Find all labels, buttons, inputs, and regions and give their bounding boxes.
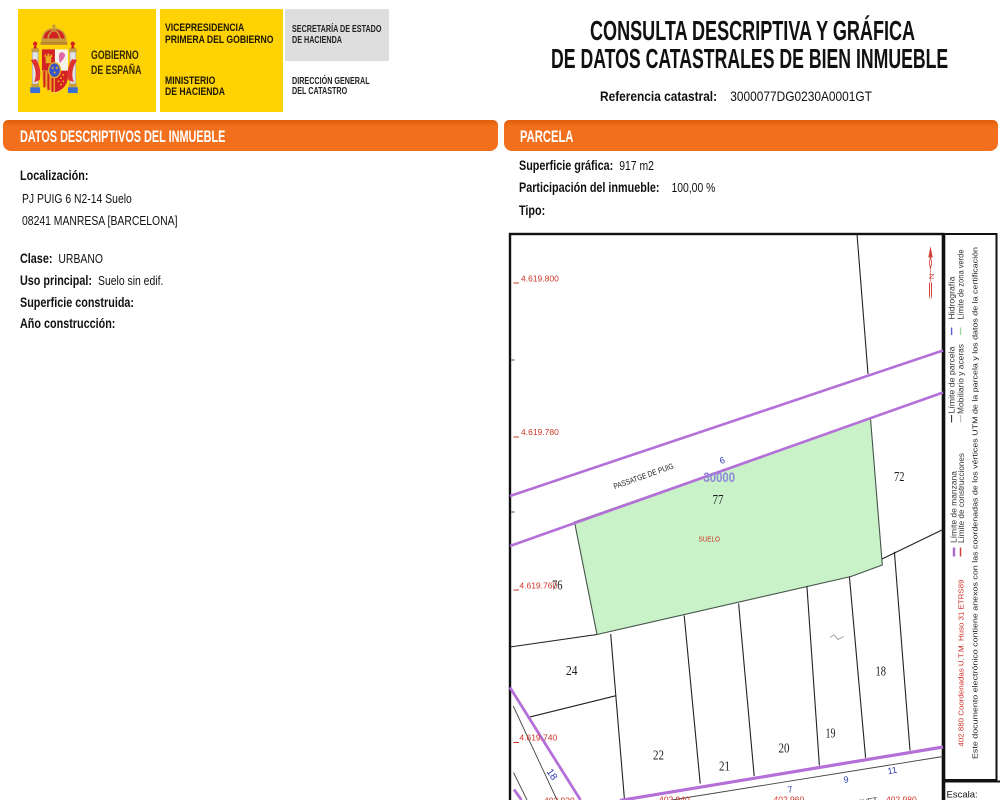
- svg-text:402.960: 402.960: [774, 795, 805, 800]
- svg-text:18: 18: [876, 665, 887, 680]
- svg-text:Mobiliario y aceras: Mobiliario y aceras: [957, 344, 966, 414]
- svg-text:Este documento electrónico con: Este documento electrónico contiene anex…: [971, 247, 980, 759]
- svg-text:77: 77: [713, 493, 724, 508]
- svg-text:SUELO: SUELO: [699, 535, 721, 544]
- svg-text:402.980: 402.980: [886, 795, 917, 800]
- svg-text:19: 19: [826, 727, 836, 742]
- svg-text:N: N: [927, 274, 936, 279]
- svg-text:6: 6: [718, 455, 726, 466]
- svg-text:Hidrografía: Hidrografía: [948, 276, 957, 320]
- svg-text:20: 20: [779, 742, 790, 757]
- svg-text:24: 24: [566, 664, 578, 679]
- svg-text:PASSATGE DE PUIG: PASSATGE DE PUIG: [612, 462, 674, 492]
- svg-text:21: 21: [719, 760, 730, 775]
- svg-text:72: 72: [894, 470, 905, 485]
- svg-text:402.940: 402.940: [659, 795, 690, 800]
- svg-text:402.920: 402.920: [544, 796, 575, 800]
- svg-text:4.619.780: 4.619.780: [521, 427, 559, 437]
- svg-text:9: 9: [843, 774, 850, 785]
- svg-text:18: 18: [544, 767, 560, 783]
- svg-text:402.880 Coordenadas U.T.M. Hus: 402.880 Coordenadas U.T.M. Huso 31 ETRS8…: [956, 580, 965, 747]
- svg-text:76: 76: [552, 579, 563, 594]
- svg-text:Límite de zona verde: Límite de zona verde: [957, 250, 966, 320]
- svg-text:Límite de construcciones: Límite de construcciones: [957, 453, 966, 543]
- svg-text:PVET: PVET: [857, 795, 878, 800]
- svg-text:4.619.800: 4.619.800: [521, 274, 559, 284]
- svg-text:22: 22: [653, 749, 664, 764]
- svg-text:30000: 30000: [704, 469, 736, 485]
- svg-text:4.619.740: 4.619.740: [519, 733, 557, 743]
- svg-text:Escala:: Escala:: [947, 790, 978, 800]
- svg-text:7: 7: [787, 784, 794, 795]
- svg-text:Límite de parcela: Límite de parcela: [948, 346, 957, 414]
- svg-text:11: 11: [887, 765, 898, 776]
